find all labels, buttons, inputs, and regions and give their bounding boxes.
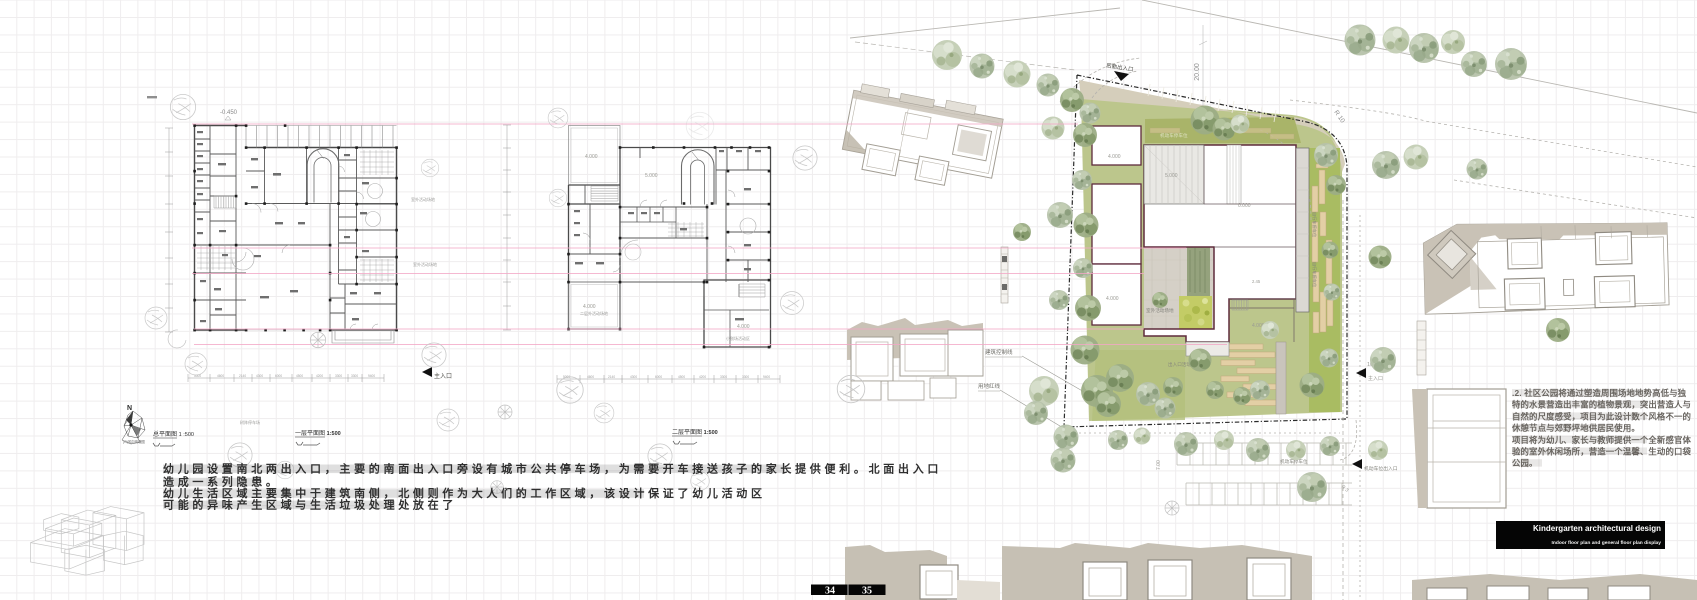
svg-text:.2. 社区公园将通过塑造周围场地地势高低与独: .2. 社区公园将通过塑造周围场地地势高低与独 [1512,388,1687,398]
svg-text:2140: 2140 [239,374,246,378]
svg-text:4.000: 4.000 [583,304,596,310]
svg-text:休憩节点与郊野坪地供居民使用。: 休憩节点与郊野坪地供居民使用。 [1511,423,1640,433]
svg-text:小剧场活动区: 小剧场活动区 [726,335,750,341]
svg-text:可能的异味产生区域与生活垃圾处理处放在了: 可能的异味产生区域与生活垃圾处理处放在了 [163,498,457,512]
svg-text:R 3: R 3 [1340,484,1350,494]
svg-text:4.000: 4.000 [1106,296,1119,302]
svg-text:4600: 4600 [587,375,594,379]
svg-text:4600: 4600 [217,374,224,378]
svg-text:3300: 3300 [335,374,342,378]
svg-text:35: 35 [862,586,872,597]
svg-text:后勤出入口: 后勤出入口 [1106,61,1134,73]
svg-text:室外活动场地: 室外活动场地 [413,261,437,267]
svg-text:0.000: 0.000 [1238,203,1251,209]
svg-text:4300: 4300 [630,375,637,379]
svg-text:幼儿生活区域主要集中于建筑南侧，北侧则作为大人们的工作区域，: 幼儿生活区域主要集中于建筑南侧，北侧则作为大人们的工作区域，该设计保证了幼儿活动… [163,486,766,500]
svg-text:4200: 4200 [699,375,706,379]
svg-text:主入口: 主入口 [1368,375,1383,382]
svg-text:项目将为幼儿、家长与教师提供一个全新感官体: 项目将为幼儿、家长与教师提供一个全新感官体 [1512,435,1691,445]
svg-text:Kindergarten architectural des: Kindergarten architectural design [1533,524,1661,533]
svg-text:-0.450: -0.450 [220,110,238,116]
svg-text:20.00: 20.00 [1194,63,1201,81]
svg-text:特的水景营造出丰富的植物景观，突出营造人与: 特的水景营造出丰富的植物景观，突出营造人与 [1512,400,1691,410]
svg-text:9400: 9400 [368,374,375,378]
svg-text:Indoor floor plan and general: Indoor floor plan and general floor plan… [1551,540,1661,546]
svg-text:建筑控制线: 建筑控制线 [985,348,1013,356]
svg-text:6000: 6000 [275,374,282,378]
svg-text:室外活动场地: 室外活动场地 [411,196,435,202]
svg-text:4200: 4200 [316,374,323,378]
svg-text:4500: 4500 [678,375,685,379]
svg-text:主入口: 主入口 [434,372,452,380]
svg-text:3300: 3300 [351,374,358,378]
svg-text:二层外活动场地: 二层外活动场地 [580,310,608,316]
svg-text:2140: 2140 [608,375,615,379]
svg-text:3300: 3300 [742,375,749,379]
svg-text:4300: 4300 [256,374,263,378]
svg-text:公园。: 公园。 [1512,458,1538,468]
svg-text:自行车停车位: 自行车停车位 [1311,262,1318,287]
svg-text:机动车停车位: 机动车停车位 [1160,132,1188,139]
svg-text:3300: 3300 [720,375,727,379]
svg-text:6000: 6000 [655,375,662,379]
svg-text:幼儿园设置南北两出入口，主要的南面出入口旁设有城市公共停车场: 幼儿园设置南北两出入口，主要的南面出入口旁设有城市公共停车场，为需要开车接送孩子… [163,462,942,476]
svg-text:4.000: 4.000 [1108,154,1121,160]
svg-text:R 10: R 10 [1332,109,1346,125]
svg-text:自然的尺度感受，项目为此设计数个风格不一的: 自然的尺度感受，项目为此设计数个风格不一的 [1512,411,1691,421]
svg-text:用地红线: 用地红线 [978,382,1001,390]
svg-text:一层平面图 1:500: 一层平面图 1:500 [295,430,341,437]
svg-text:9400: 9400 [763,375,770,379]
svg-text:4500: 4500 [296,374,303,378]
svg-text:自行车停车位: 自行车停车位 [1311,212,1318,237]
svg-text:7.00: 7.00 [1156,460,1162,470]
svg-text:4.000: 4.000 [585,154,598,160]
svg-text:总平面图 1 :500: 总平面图 1 :500 [153,430,194,438]
svg-text:34: 34 [825,586,835,597]
svg-text:5.000: 5.000 [1165,173,1178,179]
svg-text:N: N [127,405,132,412]
svg-text:二层平面图 1:500: 二层平面图 1:500 [672,429,718,436]
svg-text:5.000: 5.000 [645,173,658,179]
svg-text:树阵停车场: 树阵停车场 [240,419,260,425]
svg-text:2.45: 2.45 [1252,279,1261,284]
svg-text:造成一系列隐患。: 造成一系列隐患。 [163,475,281,489]
svg-text:室外活动场地: 室外活动场地 [1146,307,1174,314]
svg-text:验的室外休闲场所，营造一个温馨、生动的口袋: 验的室外休闲场所，营造一个温馨、生动的口袋 [1512,447,1691,457]
svg-text:(O)风向玫瑰图: (O)风向玫瑰图 [123,439,145,444]
svg-text:机动车位出入口: 机动车位出入口 [1364,465,1398,472]
